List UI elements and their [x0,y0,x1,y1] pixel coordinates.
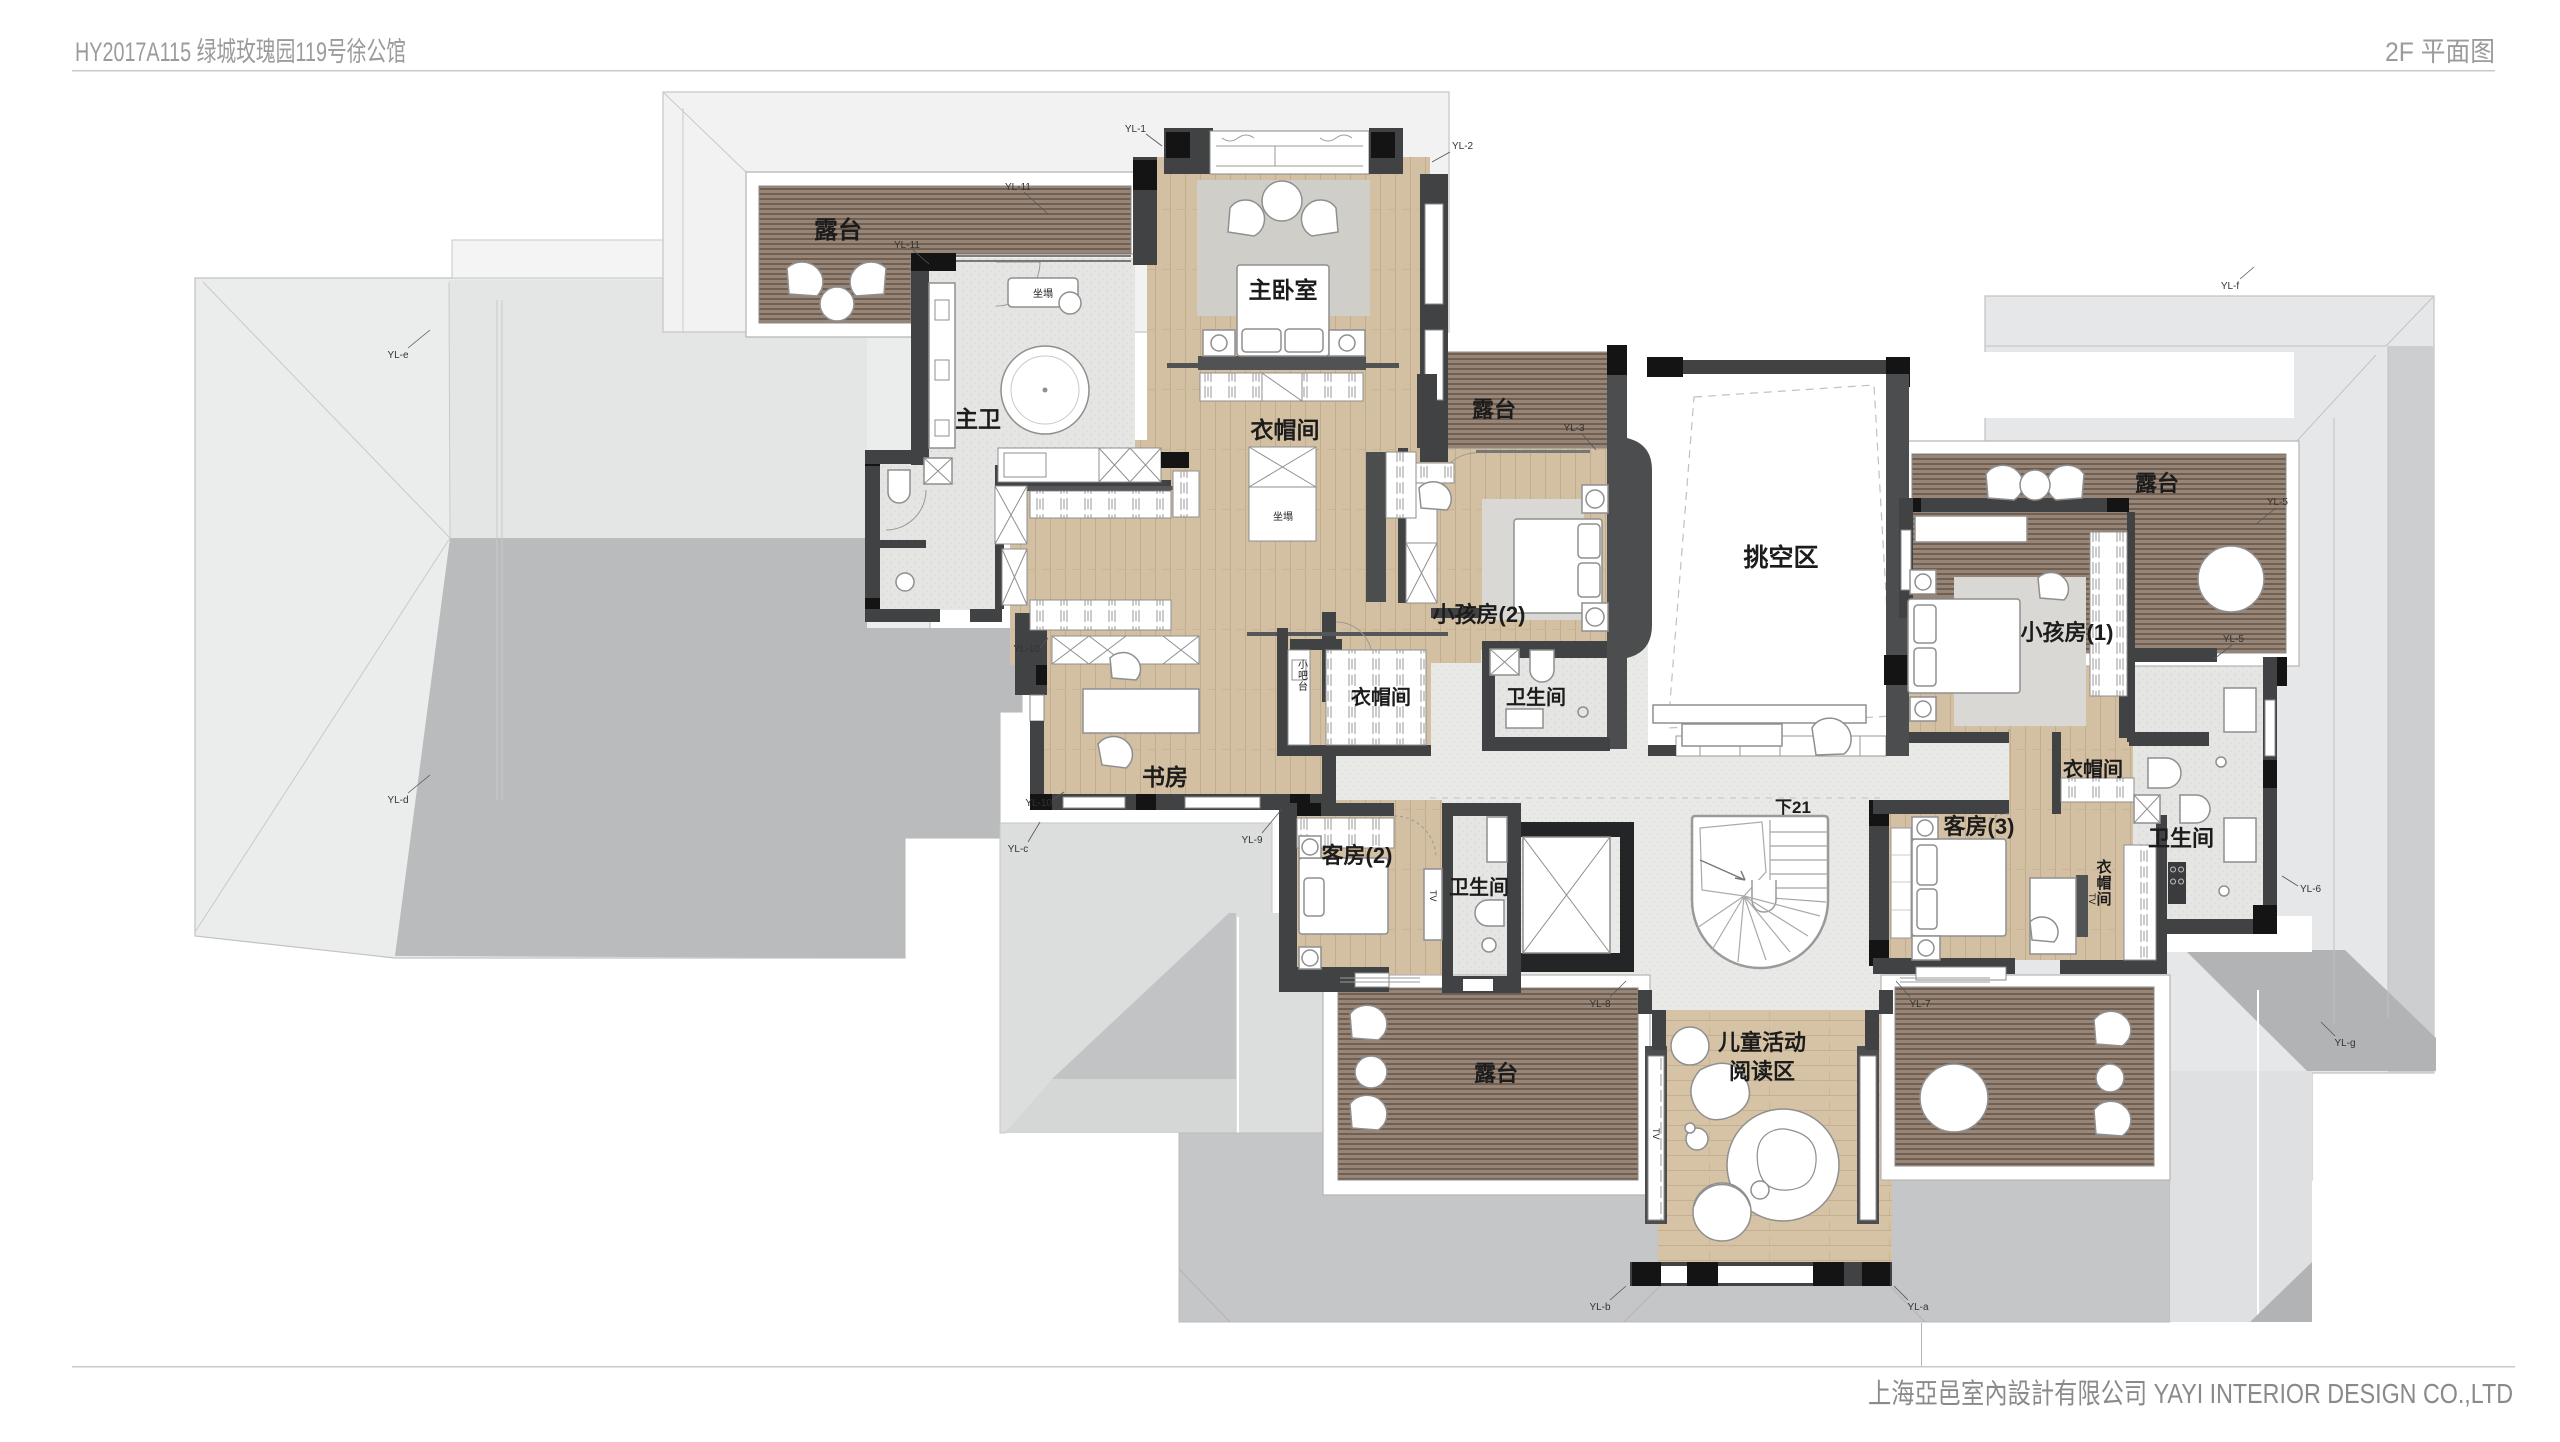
svg-text:小吧台: 小吧台 [1298,659,1308,693]
svg-text:下21: 下21 [1775,798,1811,817]
svg-text:YL-6: YL-6 [2300,884,2322,895]
svg-text:YL-10: YL-10 [1025,798,1052,809]
svg-text:YL-g: YL-g [2334,1038,2355,1049]
svg-text:衣帽间: 衣帽间 [2063,757,2123,781]
svg-text:YL-11: YL-11 [1005,182,1031,193]
svg-text:衣帽间: 衣帽间 [2096,858,2111,908]
svg-text:主卧室: 主卧室 [1249,277,1318,303]
svg-text:客房(3): 客房(3) [1944,814,2015,839]
svg-text:YL-a: YL-a [1907,1302,1929,1313]
svg-text:YL-1: YL-1 [1125,124,1147,135]
svg-text:衣帽间: 衣帽间 [1351,685,1411,709]
svg-text:卫生间: 卫生间 [2148,826,2214,851]
svg-text:YL-5: YL-5 [2267,497,2289,508]
svg-text:YL-11: YL-11 [894,240,920,251]
svg-text:YL-b: YL-b [1589,1302,1611,1313]
svg-text:YL-f: YL-f [2221,281,2240,292]
svg-text:TV: TV [2087,893,2097,905]
svg-text:YL-3: YL-3 [1563,423,1585,434]
svg-text:主卫: 主卫 [955,406,1001,432]
svg-text:阅读区: 阅读区 [1729,1059,1795,1084]
svg-text:TV: TV [1428,890,1438,902]
svg-text:小孩房(1): 小孩房(1) [2021,620,2114,645]
svg-text:客房(2): 客房(2) [1322,843,1393,868]
svg-text:YL-7: YL-7 [1909,999,1931,1010]
svg-text:露台: 露台 [1474,1061,1518,1086]
svg-text:YL-e: YL-e [387,350,409,361]
svg-text:露台: 露台 [814,216,862,244]
svg-text:挑空区: 挑空区 [1743,543,1818,572]
svg-text:坐塌: 坐塌 [1033,288,1053,300]
svg-text:YL-8: YL-8 [1589,999,1611,1010]
svg-text:卫生间: 卫生间 [1449,876,1509,899]
svg-text:YL-10: YL-10 [1013,644,1040,655]
svg-text:HY2017A115 绿城玫瑰园119号徐公馆: HY2017A115 绿城玫瑰园119号徐公馆 [75,37,406,67]
svg-text:书房: 书房 [1142,764,1188,790]
svg-text:坐塌: 坐塌 [1273,511,1293,523]
svg-text:露台: 露台 [1472,397,1516,422]
svg-text:2F 平面图: 2F 平面图 [2385,37,2495,67]
svg-text:露台: 露台 [2135,471,2179,496]
svg-text:上海亞邑室內設計有限公司 YAYI INTERIOR DE: 上海亞邑室內設計有限公司 YAYI INTERIOR DESIGN CO.,LT… [1868,1378,2513,1409]
svg-text:YL-5: YL-5 [2223,634,2245,645]
svg-text:YL-d: YL-d [387,795,408,806]
svg-text:小孩房(2): 小孩房(2) [1433,602,1526,627]
svg-text:YL-c: YL-c [1008,844,1029,855]
svg-text:衣帽间: 衣帽间 [1251,417,1320,443]
svg-text:YL-2: YL-2 [1452,141,1474,152]
svg-text:卫生间: 卫生间 [1506,686,1566,709]
svg-text:儿童活动: 儿童活动 [1717,1030,1806,1055]
svg-text:TV: TV [1651,1128,1661,1140]
svg-text:YL-9: YL-9 [1241,835,1263,846]
